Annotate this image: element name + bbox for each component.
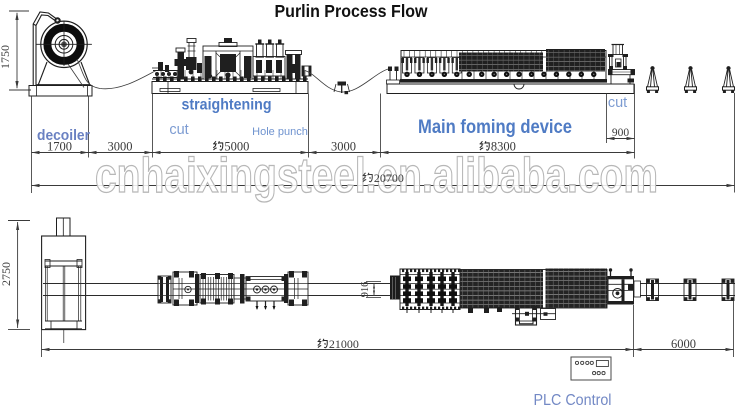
svg-text:20700: 20700 [374, 171, 404, 185]
svg-text:straightening: straightening [182, 97, 272, 114]
svg-text:cut: cut [608, 95, 627, 111]
svg-text:Purlin Process Flow: Purlin Process Flow [275, 1, 428, 21]
svg-text:21000: 21000 [329, 337, 359, 351]
svg-text:Hole punch: Hole punch [252, 126, 308, 138]
svg-text:cut: cut [169, 122, 188, 138]
svg-text:916: 916 [360, 282, 371, 298]
svg-text:decoiler: decoiler [37, 127, 90, 144]
svg-text:6000: 6000 [671, 337, 696, 351]
svg-text:Main foming device: Main foming device [418, 117, 572, 138]
svg-text:1750: 1750 [0, 45, 12, 69]
svg-text:PLC Control: PLC Control [534, 392, 612, 407]
svg-text:2750: 2750 [0, 262, 13, 286]
svg-text:900: 900 [612, 127, 630, 139]
